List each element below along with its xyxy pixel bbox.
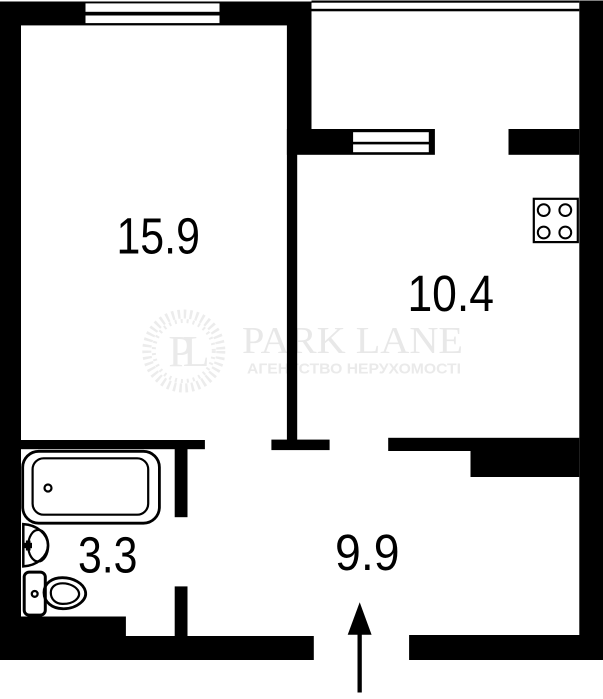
svg-text:3.3: 3.3 bbox=[78, 526, 138, 583]
svg-text:АГЕНТСТВО НЕРУХОМОСТІ: АГЕНТСТВО НЕРУХОМОСТІ bbox=[247, 361, 461, 378]
svg-text:PARK LANE: PARK LANE bbox=[242, 320, 463, 362]
svg-text:9.9: 9.9 bbox=[335, 524, 400, 581]
svg-text:10.4: 10.4 bbox=[407, 265, 494, 322]
svg-text:15.9: 15.9 bbox=[116, 208, 200, 265]
